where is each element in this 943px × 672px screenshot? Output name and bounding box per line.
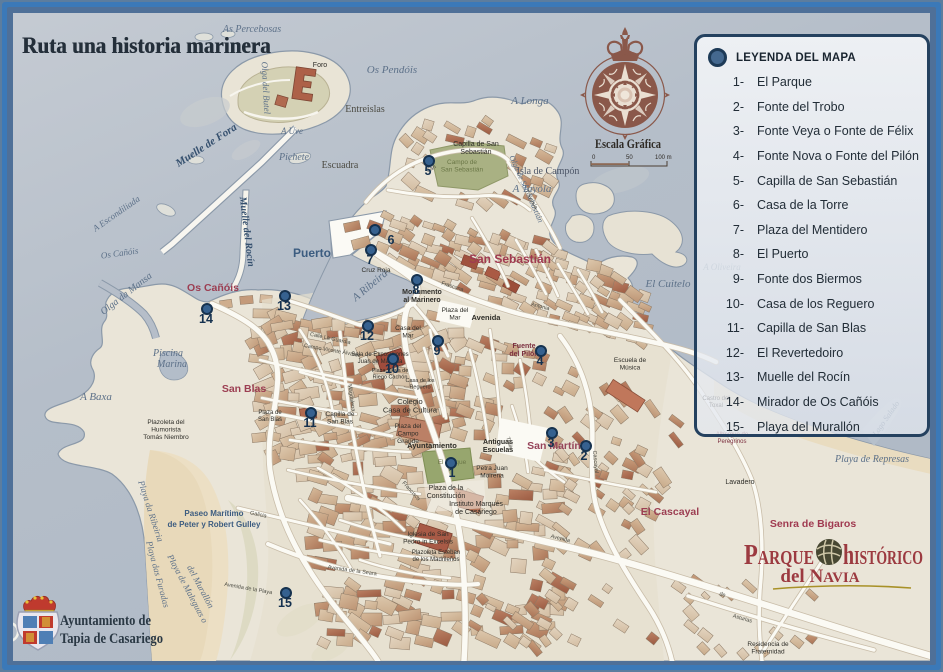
svg-text:Plazoleta Esteban: Plazoleta Esteban	[412, 550, 460, 556]
svg-text:de los Madrileños: de los Madrileños	[412, 557, 459, 563]
svg-text:San Blas: San Blas	[258, 417, 282, 423]
svg-text:4: 4	[537, 354, 544, 368]
svg-text:A Uve: A Uve	[280, 126, 303, 136]
svg-text:Pichete: Pichete	[278, 152, 310, 163]
svg-text:Escala Gráfica: Escala Gráfica	[595, 137, 662, 151]
svg-text:Plaza de la: Plaza de la	[429, 485, 464, 492]
svg-text:Escuela de: Escuela de	[614, 357, 647, 364]
svg-text:Petra Juan: Petra Juan	[476, 465, 508, 472]
svg-text:2: 2	[581, 449, 588, 463]
svg-text:Iglesia de San: Iglesia de San	[407, 531, 449, 538]
svg-text:Constitución: Constitución	[427, 493, 466, 500]
svg-text:Piscina: Piscina	[152, 348, 183, 359]
svg-text:El Cuitelo: El Cuitelo	[645, 278, 691, 290]
svg-text:Playa de Represas: Playa de Represas	[834, 454, 909, 465]
svg-text:Campo de: Campo de	[447, 159, 477, 166]
svg-text:Ayuntamiento de: Ayuntamiento de	[60, 613, 151, 629]
svg-text:Fraternidad: Fraternidad	[751, 649, 785, 656]
svg-text:A Longa: A Longa	[510, 95, 549, 107]
svg-text:Paseo Marítimo: Paseo Marítimo	[184, 509, 243, 518]
svg-text:Marina: Marina	[156, 359, 187, 370]
svg-text:Foro: Foro	[313, 62, 328, 69]
svg-text:San Blas: San Blas	[222, 383, 267, 395]
svg-text:Entreislas: Entreislas	[345, 104, 385, 115]
svg-text:Residencia de: Residencia de	[747, 641, 789, 648]
svg-text:Campo: Campo	[398, 431, 419, 438]
svg-text:Grande: Grande	[397, 438, 419, 445]
svg-text:Capilla de San: Capilla de San	[453, 141, 499, 148]
svg-text:del Pilón: del Pilón	[509, 351, 538, 358]
svg-text:Os Cañóis: Os Cañóis	[187, 282, 239, 294]
svg-text:10: 10	[385, 362, 399, 376]
svg-text:Fuente: Fuente	[513, 343, 536, 350]
svg-text:Isla de Campón: Isla de Campón	[517, 166, 580, 177]
svg-text:1: 1	[449, 466, 456, 480]
svg-text:A Baxa: A Baxa	[79, 391, 112, 403]
svg-text:Mar: Mar	[402, 333, 414, 340]
svg-text:50: 50	[626, 155, 633, 161]
svg-text:Instituto Marqués: Instituto Marqués	[449, 501, 503, 508]
svg-text:San Blas: San Blas	[327, 419, 354, 426]
svg-text:Humorista: Humorista	[151, 427, 181, 434]
svg-text:Senra de Bigaros: Senra de Bigaros	[770, 518, 857, 530]
svg-text:Capilla de: Capilla de	[326, 411, 355, 418]
svg-text:14: 14	[199, 312, 213, 326]
svg-text:11: 11	[303, 416, 316, 430]
svg-text:Pedro in Excelsis: Pedro in Excelsis	[403, 539, 454, 546]
svg-text:Puerto: Puerto	[293, 246, 331, 260]
svg-text:Monumento: Monumento	[402, 289, 442, 296]
svg-text:Tapia de Casariego: Tapia de Casariego	[60, 631, 163, 647]
svg-text:Peregrinos: Peregrinos	[717, 439, 746, 445]
svg-text:Plaza de: Plaza de	[258, 410, 282, 416]
svg-text:Tomás Niembro: Tomás Niembro	[143, 434, 189, 441]
svg-text:Plaza del: Plaza del	[442, 307, 469, 314]
svg-text:Avenida: Avenida	[472, 313, 502, 322]
svg-text:Escuadra: Escuadra	[322, 160, 359, 171]
svg-text:de Peter y Robert Gulley: de Peter y Robert Gulley	[168, 520, 261, 529]
svg-text:Os Pendóis: Os Pendóis	[367, 64, 417, 76]
svg-text:12: 12	[360, 329, 374, 343]
svg-text:15: 15	[278, 596, 292, 610]
svg-text:Mar: Mar	[449, 315, 461, 322]
svg-text:7: 7	[367, 253, 374, 267]
svg-text:Reguero: Reguero	[409, 385, 430, 391]
svg-text:Casa de los: Casa de los	[405, 378, 434, 384]
svg-text:8: 8	[413, 283, 420, 297]
svg-text:Casa de Cultura: Casa de Cultura	[383, 406, 438, 415]
svg-text:13: 13	[277, 299, 291, 313]
svg-text:San Sebastián: San Sebastián	[441, 167, 484, 174]
svg-text:3: 3	[548, 436, 555, 450]
svg-text:Música: Música	[620, 365, 641, 372]
svg-text:Casa del: Casa del	[395, 325, 421, 332]
svg-text:San Sebastián: San Sebastián	[469, 252, 551, 266]
svg-text:Moirena: Moirena	[480, 473, 504, 480]
svg-text:9: 9	[434, 344, 441, 358]
svg-text:Cruz Roja: Cruz Roja	[362, 267, 391, 274]
svg-text:Plaza del: Plaza del	[395, 423, 422, 430]
svg-text:al Marinero: al Marinero	[403, 297, 440, 304]
svg-text:6: 6	[388, 233, 395, 247]
svg-text:de Casariego: de Casariego	[455, 509, 497, 516]
svg-text:del NAVIA: del NAVIA	[780, 566, 859, 587]
svg-text:Lavadero: Lavadero	[725, 479, 754, 486]
svg-text:100 m: 100 m	[655, 155, 672, 161]
svg-text:Sebastián: Sebastián	[460, 149, 491, 156]
svg-text:El Cascayal: El Cascayal	[641, 506, 699, 518]
svg-text:5: 5	[425, 164, 432, 178]
svg-text:Plazoleta del: Plazoleta del	[147, 419, 185, 426]
